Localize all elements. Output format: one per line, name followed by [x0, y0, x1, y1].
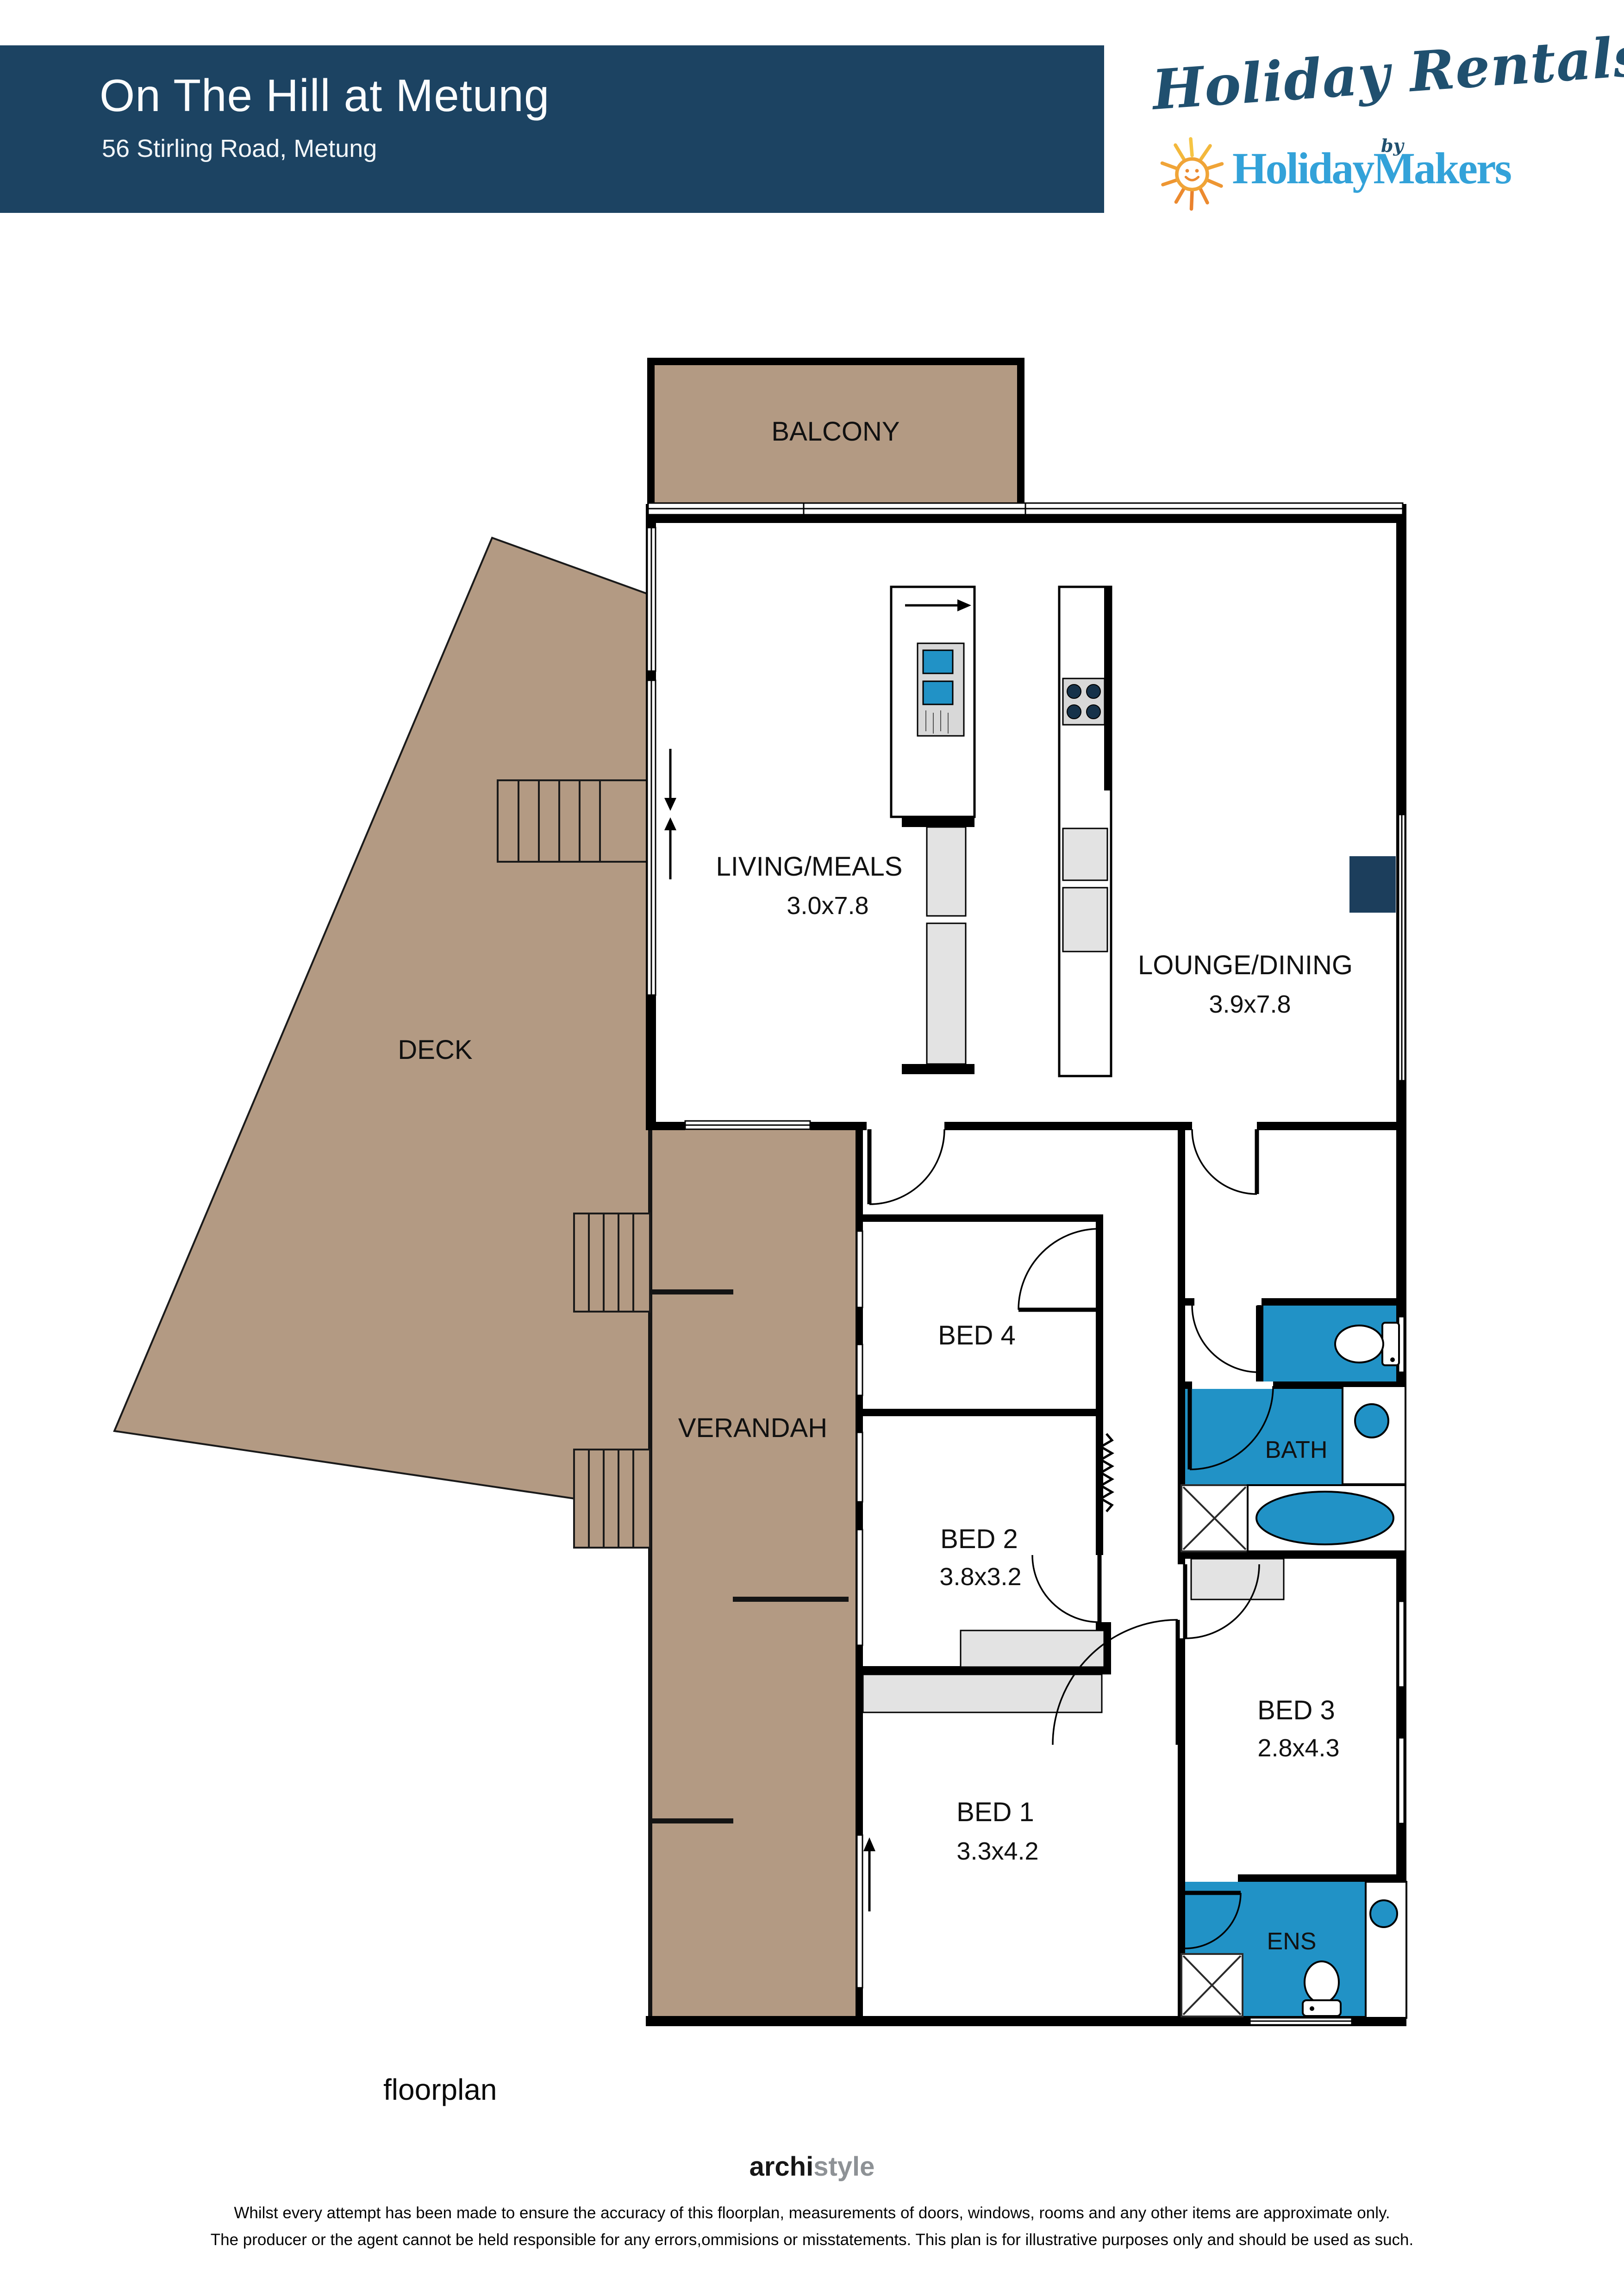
bed4-label: BED 4: [938, 1320, 1016, 1350]
bed1-label: BED 1: [956, 1797, 1034, 1827]
ens-vanity: [1366, 1882, 1406, 2018]
room-deck: [114, 538, 650, 1510]
deck-stairs-upper: [498, 780, 650, 862]
room-living-lounge: [654, 514, 1398, 1124]
living-dims: 3.0x7.8: [787, 892, 868, 920]
wc-toilet-icon: [1335, 1323, 1399, 1365]
fireplace-feature: [1349, 856, 1396, 913]
room-verandah: [648, 1129, 856, 2018]
ens-label: ENS: [1267, 1928, 1317, 1955]
wardrobe-bed3: [1191, 1559, 1284, 1599]
bath-vanity: [1343, 1386, 1405, 1484]
bath-label: BATH: [1265, 1437, 1328, 1463]
sink-icon: [1355, 1404, 1388, 1437]
lounge-dims: 3.9x7.8: [1209, 990, 1291, 1018]
stove-icon: [1063, 678, 1105, 725]
floor-plan: BALCONY LIVING/MEALS 3.0x7.8 LOUNGE/DINI…: [0, 0, 1624, 2296]
bed2-label: BED 2: [940, 1524, 1018, 1554]
bed2-dims: 3.8x3.2: [939, 1563, 1021, 1591]
kitchen-bench: [927, 827, 966, 916]
living-label: LIVING/MEALS: [716, 852, 903, 882]
sink-icon: [1370, 1900, 1397, 1927]
bath-shower-icon: [1181, 1485, 1248, 1551]
archistyle-logo: archistyle: [0, 2151, 1624, 2182]
verandah-label: VERANDAH: [678, 1413, 827, 1443]
ens-shower-icon: [1181, 1954, 1243, 2016]
bed1-dims: 3.3x4.2: [956, 1837, 1038, 1865]
disclaimer-line-2: The producer or the agent cannot be held…: [0, 2231, 1624, 2249]
bed3-label: BED 3: [1257, 1695, 1335, 1725]
archistyle-logo-primary: archi: [750, 2152, 814, 2182]
kitchen-bench: [927, 923, 966, 1064]
disclaimer-line-1: Whilst every attempt has been made to en…: [0, 2204, 1624, 2222]
deck-stairs-lower: [574, 1450, 650, 1548]
floorplan-caption: floorplan: [383, 2072, 497, 2107]
deck-stairs-mid: [574, 1213, 650, 1312]
archistyle-logo-secondary: style: [813, 2152, 874, 2182]
bed3-dims: 2.8x4.3: [1257, 1734, 1339, 1762]
wardrobe-bed1: [863, 1674, 1102, 1712]
ens-toilet-icon: [1303, 1961, 1341, 2016]
kitchen-counter: [1059, 587, 1111, 1076]
deck-label: DECK: [398, 1035, 472, 1065]
bathtub-icon: [1248, 1485, 1405, 1551]
lounge-label: LOUNGE/DINING: [1138, 950, 1353, 980]
balcony-label: BALCONY: [771, 417, 899, 447]
wardrobe-bed2: [961, 1630, 1104, 1667]
